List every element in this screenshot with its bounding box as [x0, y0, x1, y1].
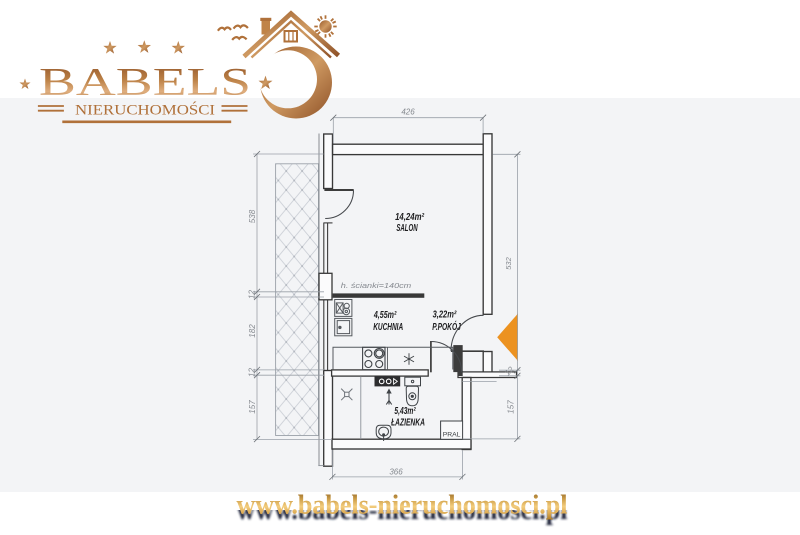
- svg-text:NIERUCHOMOŚCI: NIERUCHOMOŚCI: [75, 102, 215, 119]
- svg-text:366: 366: [389, 468, 403, 477]
- svg-text:P.POKÓJ: P.POKÓJ: [432, 320, 461, 333]
- svg-text:BABELS: BABELS: [39, 61, 251, 104]
- svg-text:www.babels-nieruchomosci.pl: www.babels-nieruchomosci.pl: [237, 489, 568, 520]
- svg-text:426: 426: [401, 108, 415, 117]
- svg-text:5,43m²: 5,43m²: [394, 405, 416, 417]
- svg-text:4,55m²: 4,55m²: [373, 309, 397, 321]
- svg-text:157: 157: [248, 400, 257, 414]
- svg-text:532: 532: [504, 256, 513, 269]
- svg-text:157: 157: [507, 400, 516, 414]
- svg-text:KUCHNIA: KUCHNIA: [373, 320, 403, 332]
- svg-text:h. ścianki=140cm: h. ścianki=140cm: [341, 282, 412, 290]
- svg-text:12: 12: [248, 368, 257, 377]
- svg-text:538: 538: [248, 209, 257, 223]
- svg-text:182: 182: [248, 324, 257, 338]
- svg-text:12: 12: [248, 290, 257, 299]
- svg-text:PRAL: PRAL: [443, 431, 461, 438]
- svg-text:14,24m²: 14,24m²: [395, 211, 425, 222]
- svg-text:ŁAZIENKA: ŁAZIENKA: [390, 416, 425, 428]
- svg-text:SALON: SALON: [396, 222, 418, 233]
- svg-text:3,22m²: 3,22m²: [433, 309, 458, 320]
